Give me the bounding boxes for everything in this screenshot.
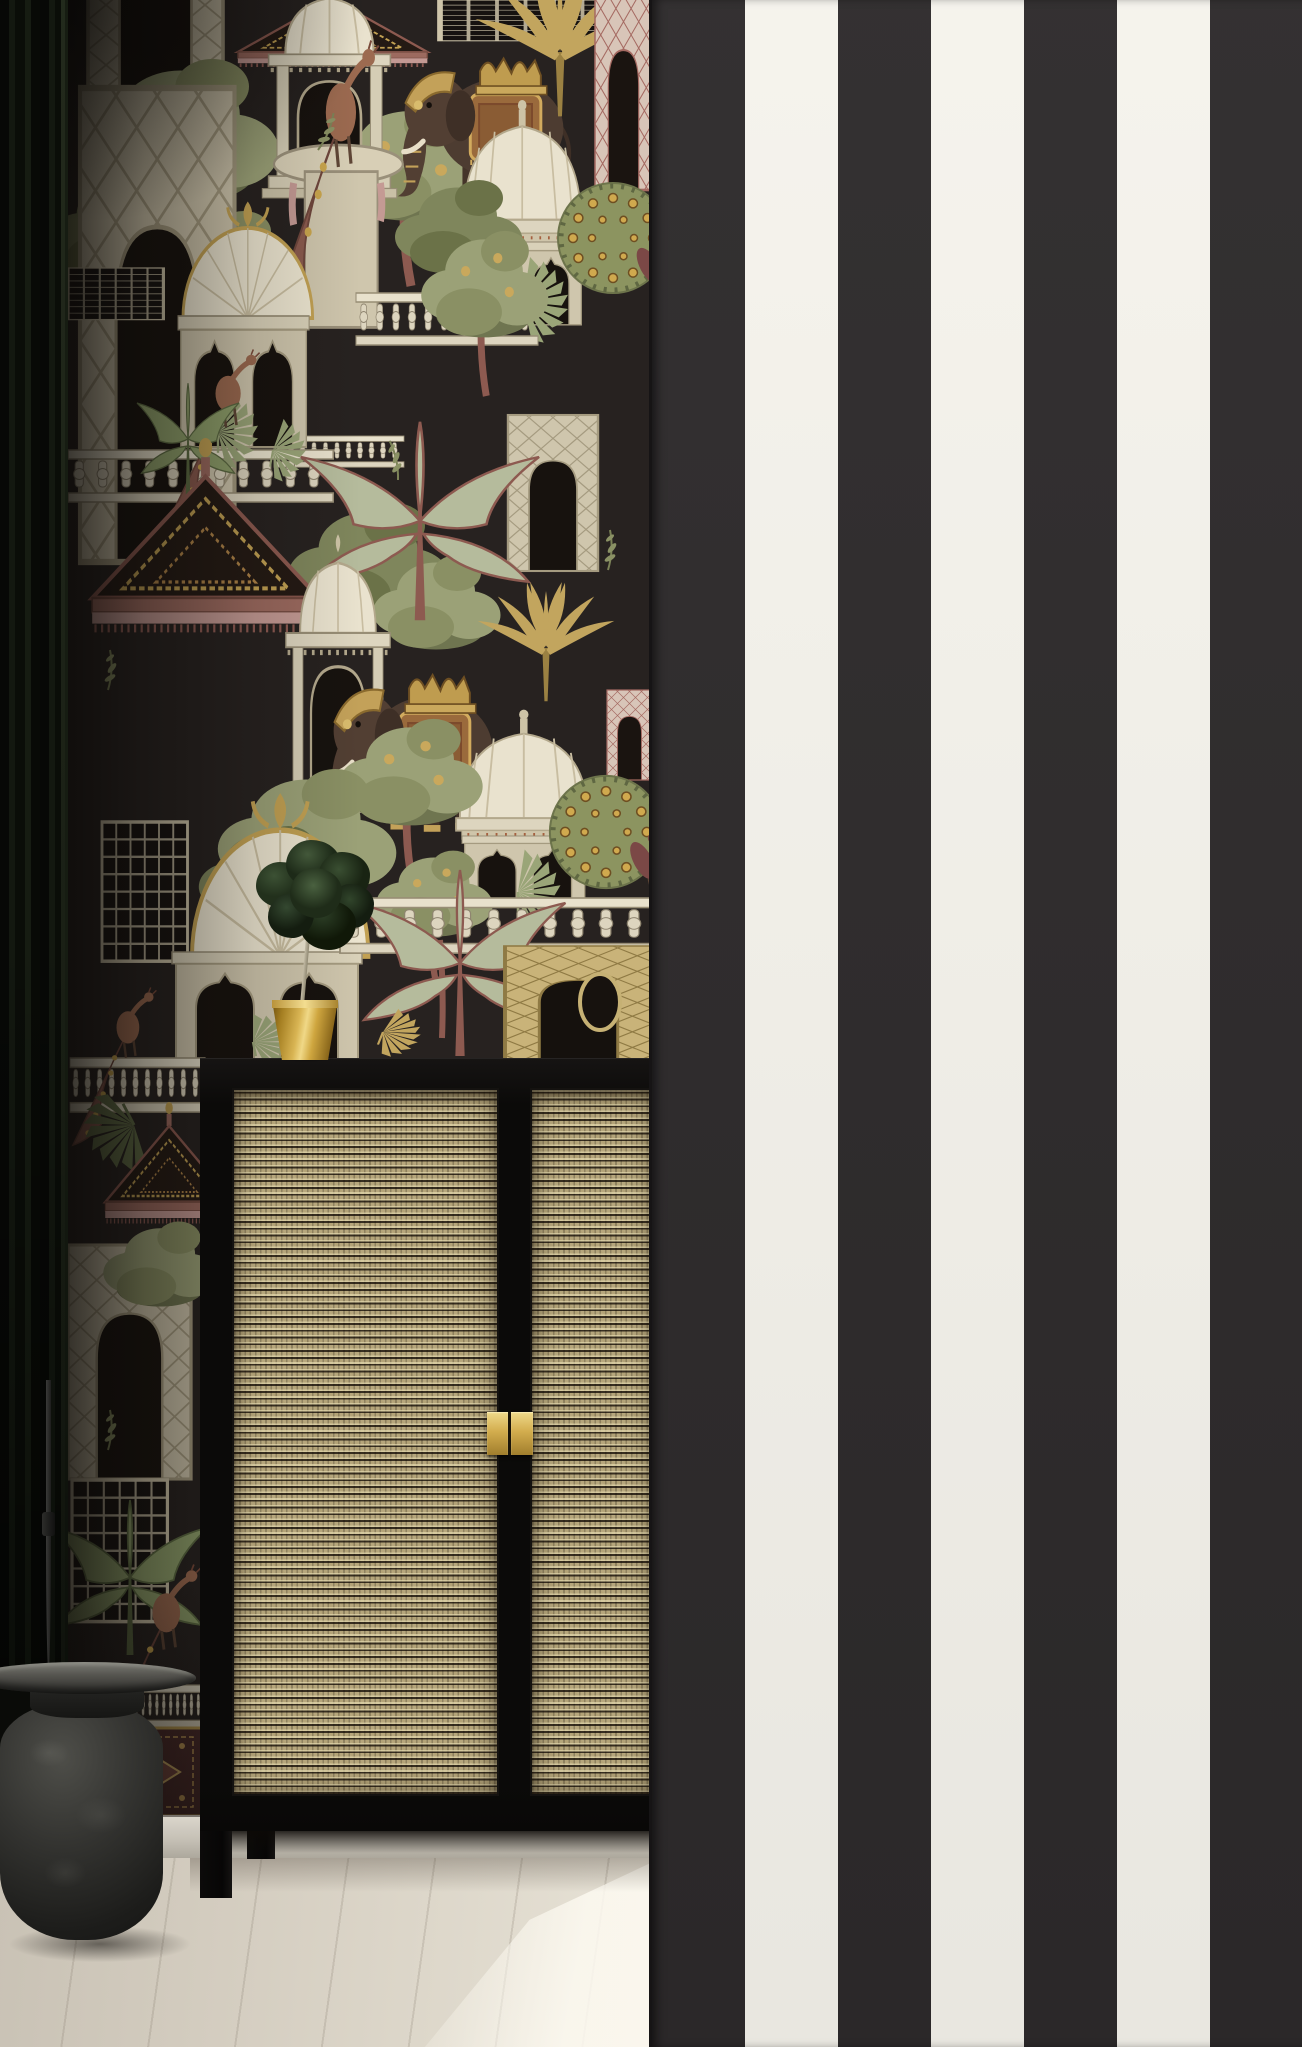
cabinet-floor-shadow [190, 1858, 649, 1892]
cabinet-under-shadow [232, 1831, 649, 1853]
brass-pot-rim [272, 1000, 338, 1008]
cabinet-left-door [232, 1088, 499, 1796]
cabinet-handle-left [487, 1412, 508, 1455]
curtain [0, 0, 68, 1680]
curtain-wand-knob [42, 1512, 55, 1536]
side-table-body [0, 1700, 163, 1940]
cabinet-right-door [530, 1088, 656, 1796]
cane-cabinet [200, 1058, 652, 1831]
cabinet-front-leg [200, 1831, 232, 1898]
cabinet-handle-gap [508, 1412, 511, 1455]
brass-pot [272, 1000, 338, 1060]
interior-photo-scene: Interior scene: Indo-chinoiserie palace-… [0, 0, 1302, 2047]
curtain-edge-highlight [61, 0, 65, 1680]
striped-feature-wall [649, 0, 1302, 2047]
cabinet-handle-right [511, 1412, 533, 1455]
